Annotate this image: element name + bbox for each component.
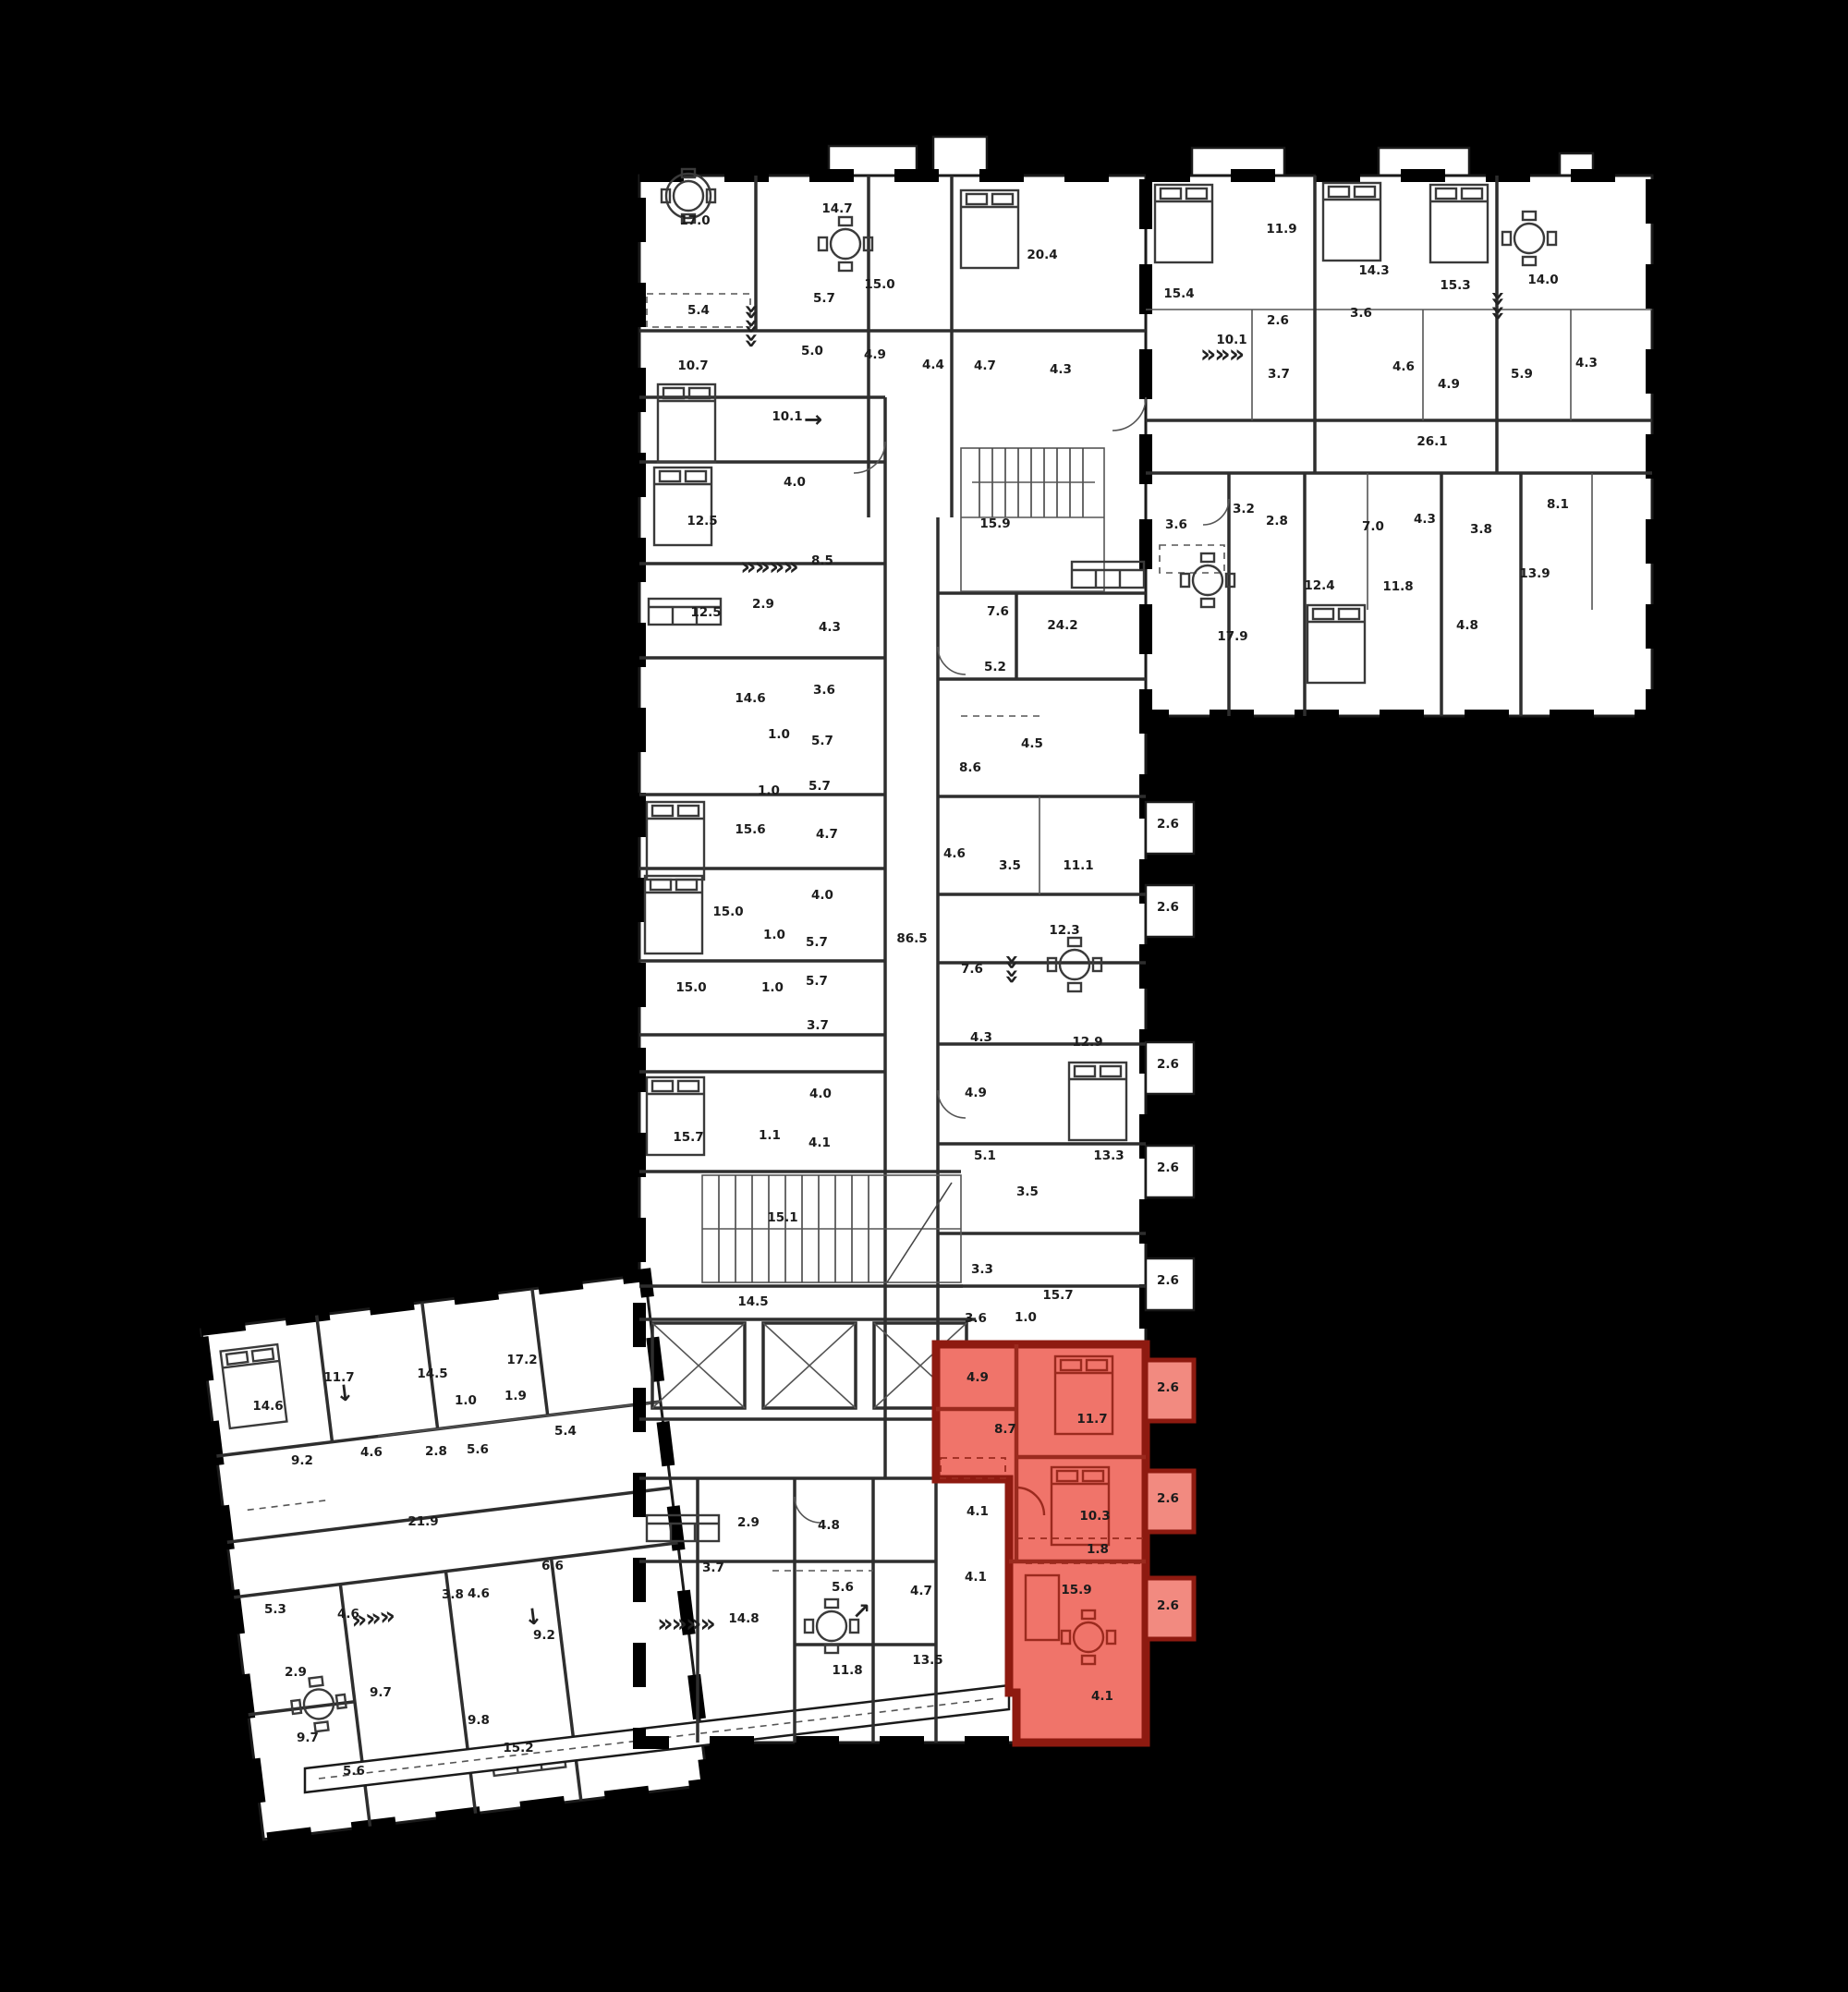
room-area-label: 1.1 (759, 1128, 781, 1143)
room-area-label: 11.8 (1382, 579, 1413, 594)
room-area-label: 9.7 (297, 1731, 319, 1745)
room-area-label: 3.8 (1470, 522, 1492, 537)
room-area-label: 4.6 (943, 846, 966, 861)
room-area-label: 15.9 (979, 516, 1010, 531)
room-area-label: 15.6 (735, 822, 765, 837)
room-area-label: 4.9 (1438, 377, 1460, 392)
room-area-label: 15.0 (712, 905, 743, 919)
room-area-label: 4.1 (808, 1136, 831, 1150)
room-area-label: 4.1 (967, 1504, 989, 1519)
room-area-label: 9.2 (291, 1453, 313, 1468)
chevrons-icon: »»»» (657, 1609, 714, 1638)
room-area-label: 6.6 (541, 1559, 564, 1573)
room-area-label: 17.2 (506, 1353, 537, 1367)
room-area-label: 4.5 (1021, 736, 1043, 751)
entry-arrow-icon: ↗ (852, 1598, 870, 1624)
room-area-label: 4.7 (816, 827, 838, 842)
room-area-label: 4.9 (864, 347, 886, 362)
room-area-label: 15.4 (1163, 286, 1194, 301)
room-area-label: 20.4 (1027, 248, 1057, 262)
room-area-label: 15.7 (673, 1130, 703, 1145)
room-area-label: 11.7 (323, 1370, 354, 1385)
room-area-label: 2.6 (1157, 1057, 1179, 1072)
room-area-label: 3.3 (971, 1262, 993, 1277)
room-area-label: 3.8 (442, 1587, 464, 1602)
room-area-label: 11.1 (1063, 858, 1093, 873)
room-area-label: 5.6 (467, 1442, 489, 1457)
room-area-label: 5.7 (806, 974, 828, 989)
room-area-label: 9.7 (370, 1685, 392, 1700)
room-area-label: 2.9 (737, 1515, 760, 1530)
room-area-label: 5.4 (554, 1424, 577, 1439)
room-area-label: 2.8 (1266, 514, 1288, 528)
selected-room-area-label: 1.8 (1087, 1542, 1109, 1557)
room-area-label: 5.6 (832, 1580, 854, 1595)
room-area-label: 13.5 (912, 1653, 942, 1668)
room-area-label: 14.7 (821, 201, 852, 216)
room-area-label: 5.9 (1511, 367, 1533, 382)
room-area-label: 5.7 (806, 935, 828, 950)
chevrons-icon: »»» (737, 304, 766, 347)
room-area-label: 2.6 (1157, 900, 1179, 915)
room-area-label: 4.3 (1414, 512, 1436, 527)
room-area-label: 26.1 (1416, 434, 1447, 449)
room-area-label: 4.0 (809, 1087, 832, 1101)
room-area-label: 3.6 (965, 1311, 987, 1326)
room-area-label: 4.1 (965, 1570, 987, 1585)
room-area-label: 10.1 (772, 409, 802, 424)
room-area-label: 4.8 (1456, 618, 1478, 633)
room-area-label: 4.3 (970, 1030, 992, 1045)
selected-room-area-label: 15.9 (1061, 1583, 1091, 1597)
room-area-label: 12.5 (690, 605, 721, 620)
room-area-label: 3.7 (702, 1561, 724, 1575)
room-area-label: 86.5 (896, 931, 927, 946)
room-area-label: 7.0 (1362, 519, 1384, 534)
selected-room-area-label: 2.6 (1157, 1380, 1179, 1395)
room-area-label: 15.2 (503, 1741, 533, 1755)
room-area-label: 2.8 (425, 1444, 447, 1459)
selected-room-area-label: 2.6 (1157, 1598, 1179, 1613)
room-area-label: 13.3 (1093, 1148, 1124, 1163)
room-area-label: 4.0 (811, 888, 833, 903)
room-area-label: 2.9 (285, 1665, 307, 1680)
room-area-label: 15.0 (675, 980, 706, 995)
room-area-label: 5.1 (974, 1148, 996, 1163)
room-area-label: 5.2 (984, 660, 1006, 674)
room-area-label: 4.6 (468, 1586, 490, 1601)
room-area-label: 15.1 (767, 1210, 797, 1225)
selected-room-area-label: 10.3 (1079, 1509, 1110, 1524)
room-area-label: 4.4 (922, 358, 944, 372)
entry-arrow-icon: → (804, 407, 822, 432)
room-area-label: 8.5 (811, 553, 833, 568)
room-area-label: 4.3 (819, 620, 841, 635)
room-area-label: 13.9 (1519, 566, 1550, 581)
room-area-label: 14.8 (728, 1611, 759, 1626)
room-area-label: 11.9 (1266, 222, 1296, 237)
selected-room-area-label: 8.7 (994, 1422, 1016, 1437)
room-area-label: 9.2 (533, 1628, 555, 1643)
room-area-label: 14.5 (417, 1366, 447, 1381)
room-area-label: 5.7 (813, 291, 835, 306)
room-area-label: 5.7 (811, 734, 833, 748)
room-area-label: 5.7 (808, 779, 831, 794)
room-area-label: 12.9 (1072, 1035, 1102, 1050)
room-area-label: 7.6 (961, 962, 983, 977)
room-area-label: 17.9 (1217, 629, 1247, 644)
room-area-label: 1.0 (761, 980, 784, 995)
room-area-label: 3.2 (1233, 502, 1255, 516)
room-area-label: 3.6 (1350, 306, 1372, 321)
room-area-label: 2.6 (1157, 1160, 1179, 1175)
room-area-label: 17.0 (679, 213, 710, 228)
room-area-label: 2.6 (1267, 313, 1289, 328)
selected-room-area-label: 4.9 (967, 1370, 989, 1385)
room-area-label: 15.0 (864, 277, 894, 292)
room-area-label: 2.9 (752, 597, 774, 612)
room-area-label: 24.2 (1047, 618, 1077, 633)
selected-room-area-label: 2.6 (1157, 1491, 1179, 1506)
room-area-label: 2.6 (1157, 817, 1179, 832)
room-area-label: 3.7 (1268, 367, 1290, 382)
room-area-label: 1.0 (768, 727, 790, 742)
room-area-label: 14.5 (737, 1294, 768, 1309)
room-area-label: 4.0 (784, 475, 806, 490)
room-area-label: 12.5 (687, 514, 717, 528)
room-area-label: 4.6 (360, 1445, 383, 1460)
chevrons-icon: »»»» (740, 553, 797, 581)
chevrons-icon: »» (1484, 291, 1513, 320)
floor-plan-page: »»»» »»» »» »»» »» »»»» »»» → ↗ ↓ ↓ (0, 0, 1848, 1992)
room-area-label: 3.7 (807, 1018, 829, 1033)
entry-arrow-icon: ↓ (522, 1603, 543, 1631)
room-area-label: 14.6 (252, 1399, 283, 1414)
floor-plan-canvas: »»»» »»» »» »»» »» »»»» »»» → ↗ ↓ ↓ (0, 0, 1848, 1992)
room-area-label: 1.0 (758, 783, 780, 798)
selected-room-area-label: 11.7 (1076, 1412, 1107, 1427)
room-area-label: 1.0 (455, 1393, 477, 1408)
room-area-label: 5.4 (687, 303, 710, 318)
room-area-label: 11.8 (832, 1663, 862, 1678)
room-area-label: 1.9 (505, 1389, 527, 1403)
room-area-label: 8.6 (959, 760, 981, 775)
room-area-label: 14.0 (1527, 273, 1558, 287)
room-area-label: 1.0 (1015, 1310, 1037, 1325)
room-area-label: 1.0 (763, 928, 785, 942)
room-area-label: 5.3 (264, 1602, 286, 1617)
room-area-label: 12.3 (1049, 923, 1079, 938)
room-area-label: 4.6 (337, 1607, 359, 1622)
room-area-label: 12.4 (1304, 578, 1334, 593)
room-area-label: 4.7 (910, 1584, 932, 1598)
room-area-label: 4.3 (1575, 356, 1598, 370)
room-area-label: 3.6 (1165, 517, 1187, 532)
room-area-label: 3.5 (1016, 1184, 1039, 1199)
room-area-label: 14.3 (1358, 263, 1389, 278)
room-area-label: 8.1 (1547, 497, 1569, 512)
room-area-label: 7.6 (987, 604, 1009, 619)
room-area-label: 3.5 (999, 858, 1021, 873)
room-area-label: 15.7 (1042, 1288, 1073, 1303)
room-area-label: 5.0 (801, 344, 823, 358)
room-area-label: 4.7 (974, 358, 996, 373)
room-area-label: 10.1 (1216, 333, 1246, 347)
room-area-label: 4.3 (1050, 362, 1072, 377)
room-area-label: 4.6 (1392, 359, 1415, 374)
room-area-label: 15.3 (1440, 278, 1470, 293)
room-area-label: 3.6 (813, 683, 835, 698)
room-area-label: 21.9 (407, 1514, 438, 1529)
room-area-label: 5.6 (343, 1764, 365, 1779)
chevrons-icon: »» (998, 954, 1027, 983)
room-area-label: 4.9 (965, 1086, 987, 1100)
room-area-label: 10.7 (677, 358, 708, 373)
room-area-label: 4.8 (818, 1518, 840, 1533)
room-area-label: 9.8 (468, 1713, 490, 1728)
room-area-label: 2.6 (1157, 1273, 1179, 1288)
selected-room-area-label: 4.1 (1091, 1689, 1113, 1704)
room-area-label: 14.6 (735, 691, 765, 706)
